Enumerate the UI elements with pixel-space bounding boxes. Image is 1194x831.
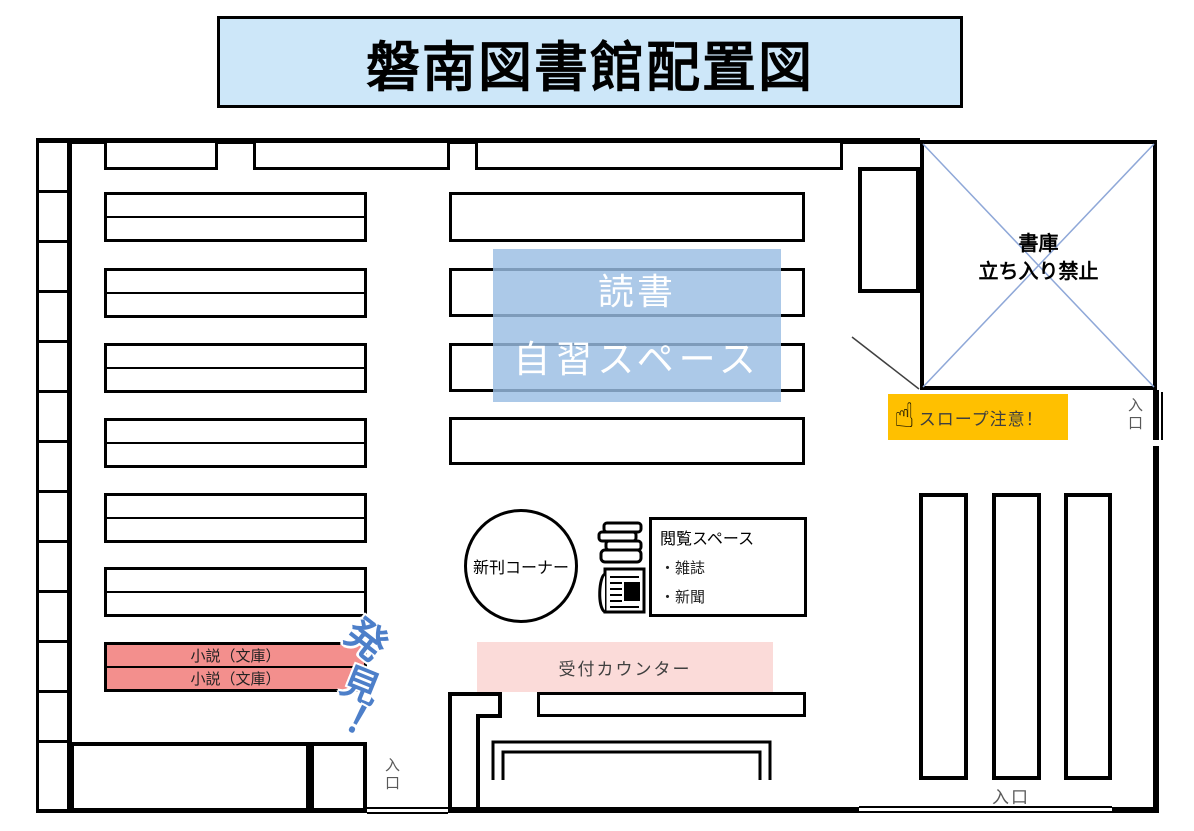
left-wall-cell: [36, 140, 70, 193]
left-wall-cell: [36, 340, 70, 393]
page-title: 磐南図書館配置図: [366, 23, 814, 102]
tall-shelf: [992, 493, 1041, 780]
newspaper-icon: [595, 566, 647, 618]
counter-desk: [537, 692, 806, 717]
study-space-label-2: 自習スペース: [513, 329, 761, 383]
left-wall-cell: [36, 540, 70, 593]
left-wall-cell: [36, 640, 70, 693]
bottom-left-room: [70, 742, 310, 812]
bookshelf: [104, 192, 367, 242]
slope-warning: ☝ スロープ注意！: [888, 394, 1068, 440]
bookshelf: [104, 493, 367, 543]
study-table: [449, 417, 805, 465]
counter-side-wall: [450, 694, 500, 810]
slope-line: [852, 337, 919, 389]
left-wall-cell: [36, 190, 70, 243]
stacks-label: 書庫 立ち入り禁止: [920, 230, 1157, 286]
reception-counter: 受付カウンター: [477, 642, 773, 692]
shelf-divider: [107, 442, 364, 444]
left-wall-cell: [36, 440, 70, 493]
tall-shelf: [919, 493, 968, 780]
pointing-hand-icon: ☝: [894, 399, 915, 433]
top-shelf: [475, 140, 843, 170]
title-banner: 磐南図書館配置図: [217, 16, 963, 108]
left-wall-cell: [36, 490, 70, 543]
entrance-label-bottom-right: 入口: [992, 783, 1030, 808]
threshold-left-a: [367, 807, 448, 809]
floor-plan: 磐南図書館配置図 小説（文庫） 小説（文庫） 読書: [0, 0, 1194, 831]
browsing-space-title: 閲覧スペース: [660, 525, 796, 549]
wall-right-lower: [1153, 446, 1159, 812]
left-wall-cell: [36, 590, 70, 643]
entrance-label-bottom-left: 入口: [381, 757, 402, 793]
left-wall-cell: [36, 240, 70, 293]
bookshelf: [104, 567, 367, 617]
new-books-label: 新刊コーナー: [473, 554, 569, 578]
threshold-right-b: [859, 811, 1112, 813]
study-space-label-1: 読書: [598, 263, 676, 315]
entrance-label-stacks-side: 入口: [1124, 397, 1145, 433]
bookshelf: [104, 418, 367, 468]
browsing-space-box: 閲覧スペース ・雑誌 ・新聞: [649, 517, 807, 617]
top-shelf: [104, 140, 218, 170]
slope-warning-label: スロープ注意！: [919, 405, 1044, 430]
bookshelf: [104, 343, 367, 393]
shelf-divider: [107, 591, 364, 593]
shelf-divider: [107, 292, 364, 294]
stacks-label-line1: 書庫: [920, 230, 1157, 258]
left-wall-cell: [36, 390, 70, 443]
threshold-right-a: [859, 806, 1112, 808]
side-shelf: [858, 167, 920, 293]
left-wall-cell: [36, 290, 70, 343]
browsing-space-item: ・雑誌: [660, 557, 796, 578]
study-space-overlay: 読書 自習スペース: [493, 249, 781, 402]
bookshelf: [104, 268, 367, 318]
tall-shelf: [1064, 493, 1112, 780]
shelf-divider: [107, 367, 364, 369]
wall-right-upper: [1153, 390, 1159, 440]
study-table: [449, 192, 805, 242]
novel-shelf: 小説（文庫） 小説（文庫）: [104, 642, 367, 692]
shelf-divider: [107, 216, 364, 218]
new-books-circle: 新刊コーナー: [464, 509, 578, 623]
browsing-space-item: ・新聞: [660, 586, 796, 607]
bottom-left-room-small: [310, 742, 367, 812]
wall-bottom-center: [448, 807, 859, 813]
shelf-divider: [107, 517, 364, 519]
stacks-label-line2: 立ち入り禁止: [920, 258, 1157, 286]
novel-shelf-row: 小説（文庫）: [107, 645, 364, 666]
top-shelf: [253, 140, 450, 170]
queue-rail-inner: [503, 752, 760, 780]
queue-rail-outer: [493, 742, 770, 780]
novel-shelf-row: 小説（文庫）: [107, 668, 364, 689]
wall-bottom-right: [1112, 807, 1159, 813]
threshold-left-b: [367, 812, 448, 814]
books-icon: [597, 521, 645, 565]
left-wall-cell: [36, 690, 70, 743]
left-wall-cell: [36, 740, 70, 812]
wall-right-door-line: [1161, 392, 1163, 440]
